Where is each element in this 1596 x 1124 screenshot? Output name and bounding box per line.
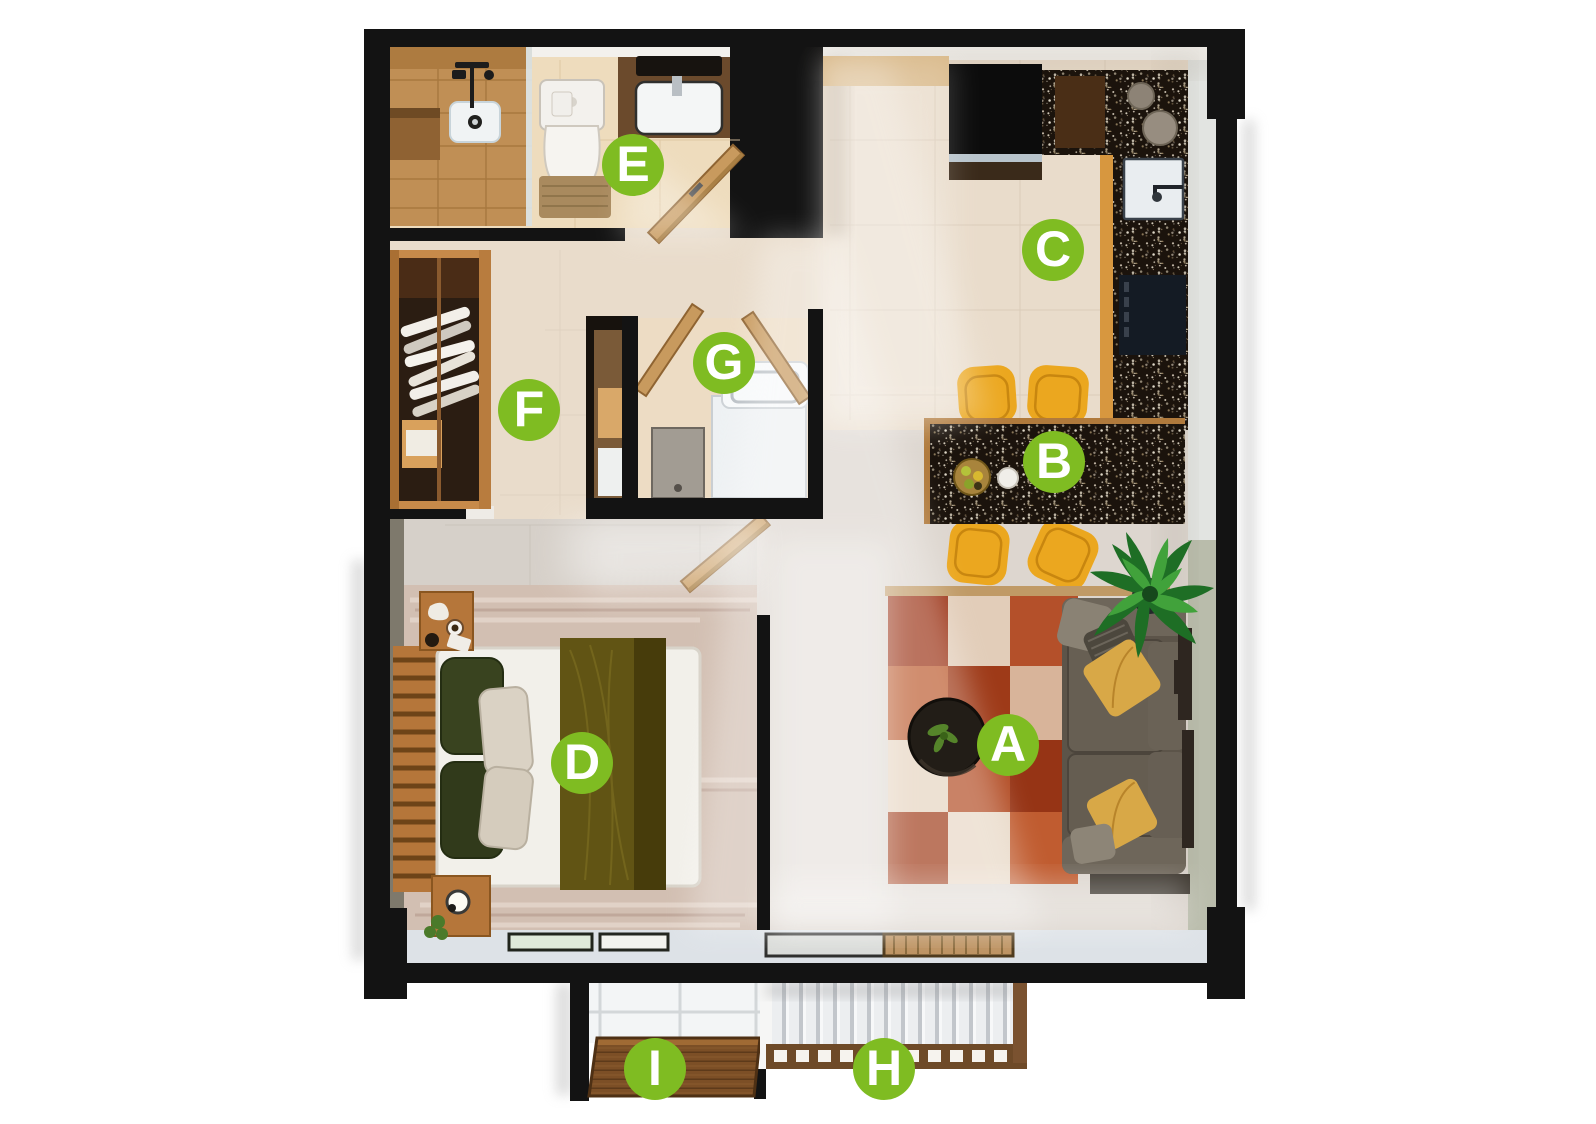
svg-text:G: G: [705, 334, 744, 390]
svg-text:A: A: [990, 716, 1026, 772]
svg-text:D: D: [564, 734, 600, 790]
svg-text:B: B: [1036, 433, 1072, 489]
svg-text:F: F: [514, 381, 545, 437]
svg-text:I: I: [648, 1040, 662, 1096]
svg-text:C: C: [1035, 221, 1071, 277]
svg-text:H: H: [866, 1040, 902, 1096]
svg-text:E: E: [616, 136, 649, 192]
